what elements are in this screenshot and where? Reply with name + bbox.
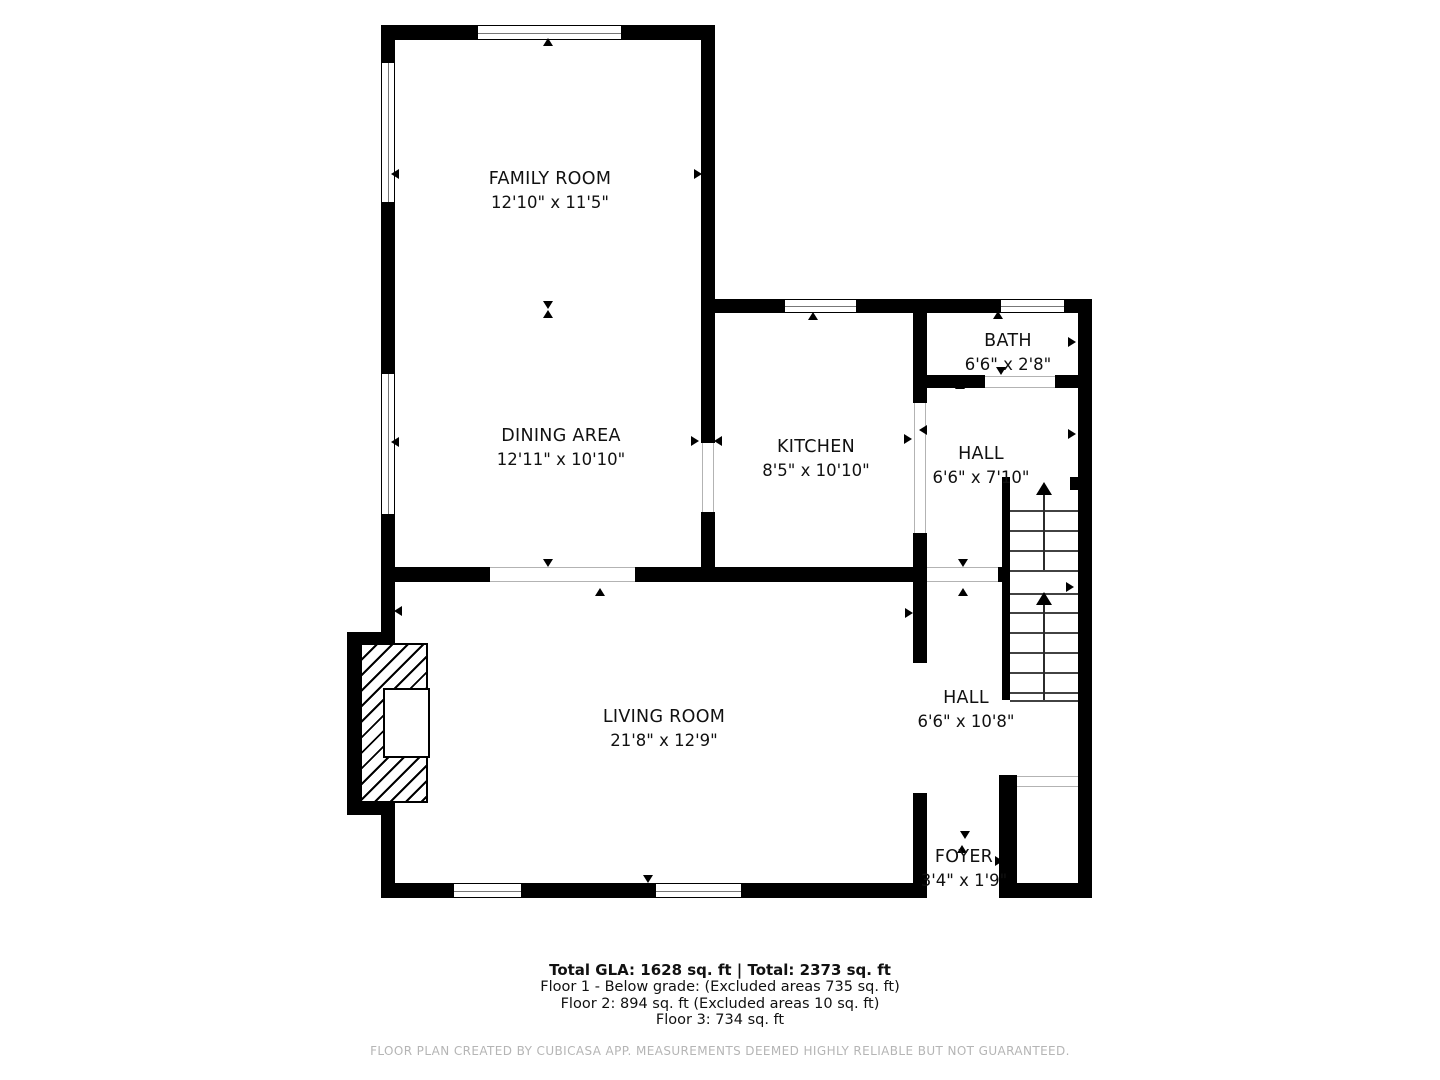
dimension-arrow-icon <box>595 588 605 596</box>
dimension-arrow-icon <box>394 606 402 616</box>
dimension-arrow-icon <box>958 559 968 567</box>
wall <box>913 582 927 663</box>
dimension-arrow-icon <box>905 608 913 618</box>
wall <box>913 375 985 388</box>
room-name: HALL <box>861 443 1101 466</box>
dimension-arrow-icon <box>1066 582 1074 592</box>
room-dimensions: 21'8" x 12'9" <box>544 729 784 752</box>
wall <box>857 299 1000 313</box>
room-name: BATH <box>888 330 1128 353</box>
window <box>1000 299 1065 313</box>
room-dimensions: 12'11" x 10'10" <box>441 448 681 471</box>
room-name: LIVING ROOM <box>544 706 784 729</box>
door-opening-line <box>1017 786 1078 787</box>
room-name: DINING AREA <box>441 425 681 448</box>
wall <box>381 25 477 40</box>
dimension-arrow-icon <box>960 831 970 839</box>
dimension-arrow-icon <box>543 310 553 318</box>
dimension-arrow-icon <box>391 169 399 179</box>
dimension-arrow-icon <box>1068 429 1076 439</box>
floor3-line: Floor 3: 734 sq. ft <box>0 1012 1440 1029</box>
dimension-arrow-icon <box>543 301 553 309</box>
room-label-hall-lower: HALL 6'6" x 10'8" <box>846 687 1086 733</box>
stair-up-arrow-icon <box>1036 592 1052 605</box>
room-label-bath: BATH 6'6" x 2'8" <box>888 330 1128 376</box>
room-name: HALL <box>846 687 1086 710</box>
room-label-dining-area: DINING AREA 12'11" x 10'10" <box>441 425 681 471</box>
dimension-arrow-icon <box>993 311 1003 319</box>
total-gla-line: Total GLA: 1628 sq. ft | Total: 2373 sq.… <box>0 962 1440 979</box>
room-name: FAMILY ROOM <box>430 168 670 191</box>
stair-direction-line <box>1043 602 1045 700</box>
wall <box>715 299 784 313</box>
door-opening-line <box>1017 776 1078 777</box>
dimension-arrow-icon <box>543 559 553 567</box>
room-dimensions: 6'6" x 10'8" <box>846 710 1086 733</box>
wall <box>1055 375 1078 388</box>
wall <box>381 25 395 62</box>
dimension-arrow-icon <box>919 425 927 435</box>
window <box>453 883 522 898</box>
room-label-living-room: LIVING ROOM 21'8" x 12'9" <box>544 706 784 752</box>
wall <box>701 313 715 443</box>
window <box>381 62 395 203</box>
door-opening-line <box>490 567 635 568</box>
disclaimer-text: FLOOR PLAN CREATED BY CUBICASA APP. MEAS… <box>0 1044 1440 1058</box>
dimension-arrow-icon <box>643 875 653 883</box>
floor-plan: FAMILY ROOM 12'10" x 11'5" DINING AREA 1… <box>0 0 1440 1080</box>
door-opening-line <box>927 581 998 582</box>
fireplace-firebox <box>383 688 430 758</box>
wall <box>635 567 927 582</box>
room-name: FOYER <box>844 846 1084 869</box>
dimension-arrow-icon <box>955 381 965 389</box>
dimension-arrow-icon <box>808 312 818 320</box>
window <box>655 883 742 898</box>
door-opening-line <box>927 567 998 568</box>
fireplace-wall <box>347 803 395 815</box>
room-label-foyer: FOYER 3'4" x 1'9" <box>844 846 1084 892</box>
dimension-arrow-icon <box>694 169 702 179</box>
stair-direction-line <box>1043 492 1045 570</box>
floor2-line: Floor 2: 894 sq. ft (Excluded areas 10 s… <box>0 996 1440 1013</box>
dimension-arrow-icon <box>958 588 968 596</box>
room-dimensions: 6'6" x 7'10" <box>861 466 1101 489</box>
room-label-hall-upper: HALL 6'6" x 7'10" <box>861 443 1101 489</box>
stair-wall <box>1002 477 1010 700</box>
room-dimensions: 3'4" x 1'9" <box>844 869 1084 892</box>
room-dimensions: 12'10" x 11'5" <box>430 191 670 214</box>
fireplace-wall <box>347 632 360 815</box>
window <box>784 299 857 313</box>
wall <box>381 203 395 373</box>
dimension-arrow-icon <box>391 437 399 447</box>
wall <box>381 567 490 582</box>
wall <box>1078 299 1092 898</box>
wall <box>381 883 453 898</box>
area-summary: Total GLA: 1628 sq. ft | Total: 2373 sq.… <box>0 962 1440 1029</box>
floor1-line: Floor 1 - Below grade: (Excluded areas 7… <box>0 979 1440 996</box>
wall <box>701 25 715 313</box>
door-opening-line <box>985 387 1055 388</box>
dimension-arrow-icon <box>543 38 553 46</box>
stair-tread <box>1010 570 1078 572</box>
wall <box>522 883 655 898</box>
door-opening-line <box>490 581 635 582</box>
door-opening-line <box>985 376 1055 377</box>
room-dimensions: 6'6" x 2'8" <box>888 353 1128 376</box>
room-label-family-room: FAMILY ROOM 12'10" x 11'5" <box>430 168 670 214</box>
